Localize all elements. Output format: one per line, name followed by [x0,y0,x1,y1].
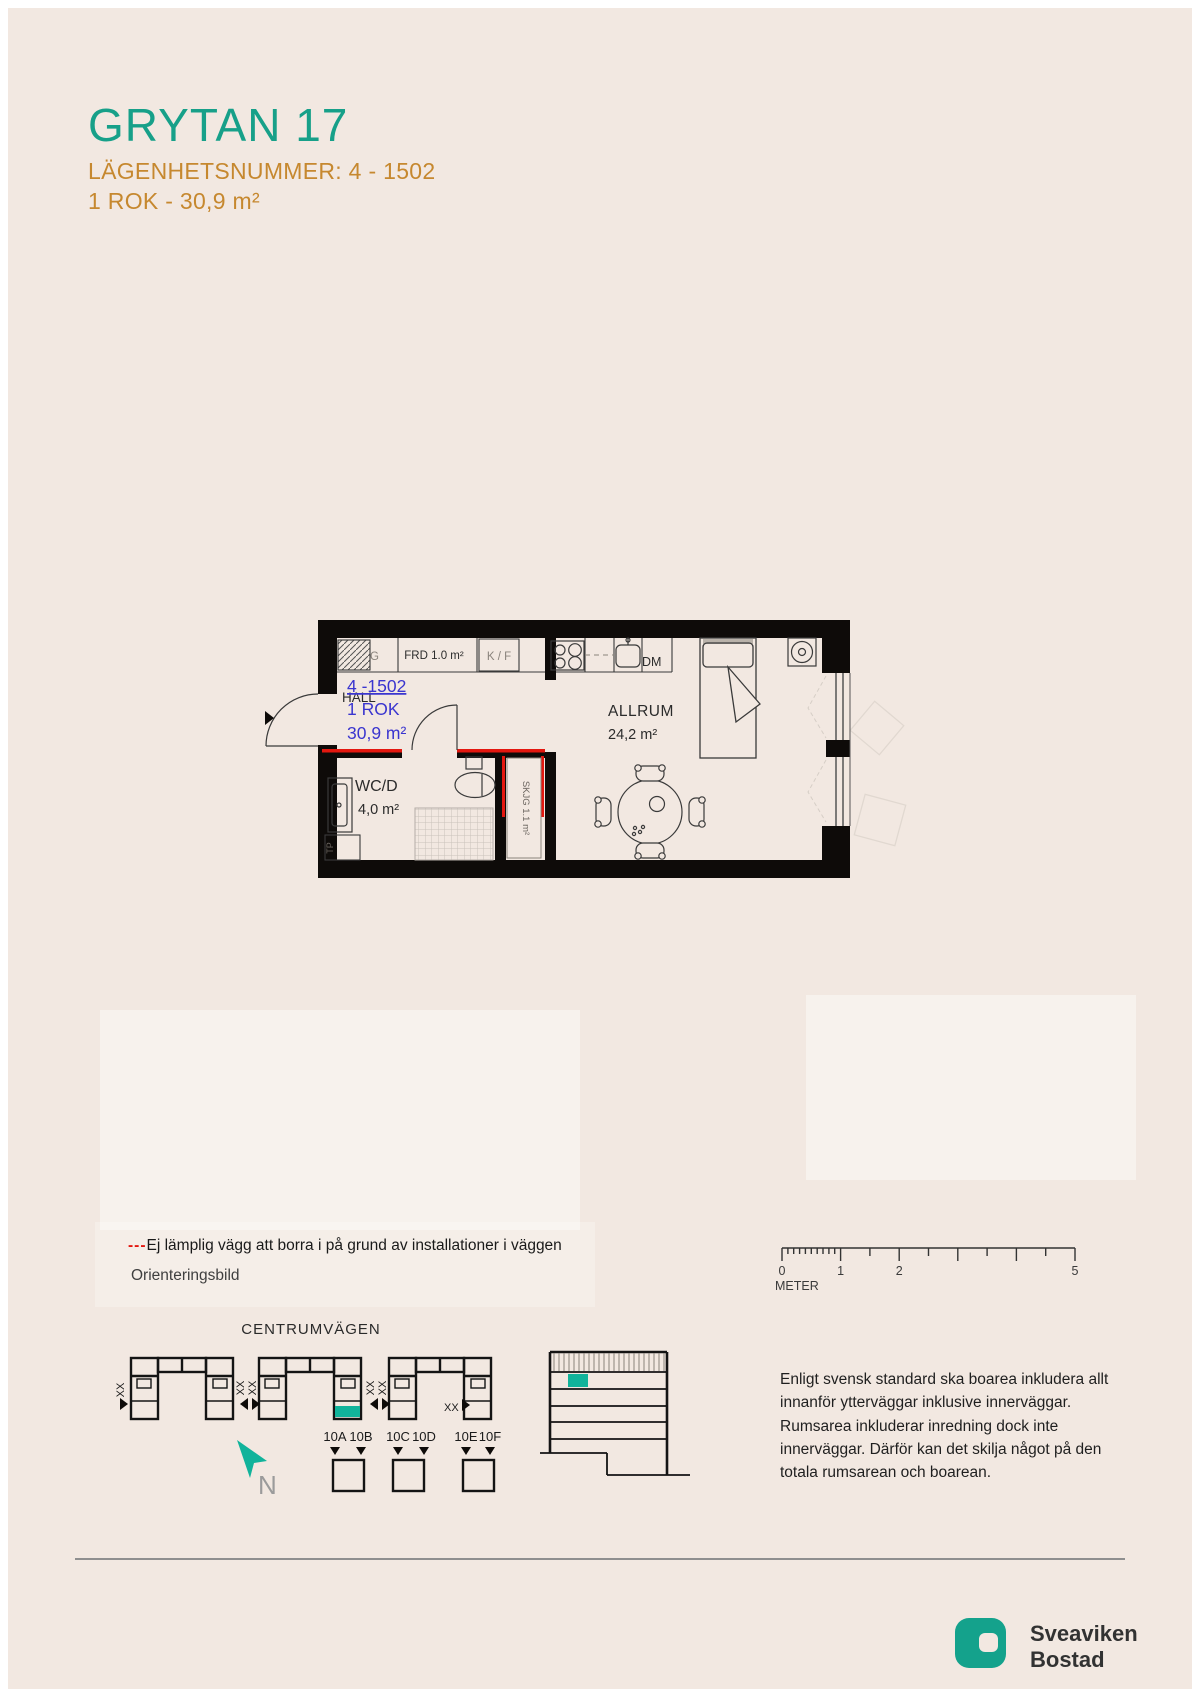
dm-label: DM [642,655,661,669]
building-3 [389,1358,491,1419]
no-drill-dash-icon: --- [128,1237,147,1254]
boarea-info-text: Enligt svensk standard ska boarea inklud… [780,1368,1125,1484]
entrance-squares [333,1460,494,1491]
floor-plan-drawing: G FRD 1.0 m² K / F DM HALL ALLRUM 24,2 m… [230,608,910,898]
nightstand-icon [788,638,816,666]
building-section-diagram [540,1345,700,1485]
entrance-label-10e: 10E [454,1429,477,1444]
entry-direction-arrows [120,1398,470,1411]
north-label: N [258,1470,277,1500]
g-closet-label: G [370,651,379,663]
scale-label-1: 1 [837,1264,844,1278]
xx-marker: XX [377,1380,389,1395]
page-title: GRYTAN 17 [88,98,348,152]
apartment-number-line: LÄGENHETSNUMMER: 4 - 1502 [88,158,435,185]
scale-label-0: 0 [779,1264,786,1278]
highlighted-unit [335,1406,360,1417]
toilet-icon [455,757,495,798]
scale-unit-label: METER [775,1279,819,1293]
xx-marker: XX [115,1382,127,1397]
site-plan: CENTRUMVÄGEN XX XX XX XX XX XX 10A 10B 1… [100,1310,530,1505]
wc-door [412,705,457,750]
floor-plan: G FRD 1.0 m² K / F DM HALL ALLRUM 24,2 m… [230,608,910,898]
window-swing-marks [808,676,826,822]
unit-area-label: 30,9 m² [347,723,406,743]
scale-label-5: 5 [1072,1264,1079,1278]
unit-id-labels: 4 -1502 1 ROK 30,9 m² [347,676,406,743]
entrance-label-10b: 10B [349,1429,372,1444]
wcd-area-label: 4,0 m² [358,802,399,818]
xx-marker: XX [235,1380,247,1395]
xx-marker: XX [444,1402,459,1414]
frd-label: FRD 1.0 m² [404,650,464,662]
footer-divider [75,1558,1125,1560]
allrum-area-label: 24,2 m² [608,727,657,743]
entry-door [266,694,318,746]
no-drill-legend: ---Ej lämplig vägg att borra i på grund … [128,1237,562,1255]
chairs-icon [595,765,705,859]
entrance-label-10f: 10F [479,1429,501,1444]
logo-name-line1: Sveaviken [1030,1621,1138,1647]
company-logo: Sveaviken Bostad [955,1618,1155,1678]
apartment-size-line: 1 ROK - 30,9 m² [88,188,260,215]
wcd-label: WC/D [355,778,398,795]
skjg-label: SKJG 1.1 m² [520,781,531,835]
xx-marker: XX [365,1380,377,1395]
entrance-arrows [330,1447,495,1455]
faded-image-placeholder [806,995,1136,1180]
legend-background [95,1222,595,1307]
section-highlighted-unit [568,1374,588,1387]
shower-area [415,808,493,860]
bed-icon [700,638,760,758]
xx-marker: XX [247,1380,259,1395]
allrum-label: ALLRUM [608,703,674,720]
logo-name-line2: Bostad [1030,1647,1138,1673]
sink-icon [616,638,640,667]
entrance-label-10d: 10D [412,1429,436,1444]
scale-label-2: 2 [896,1264,903,1278]
tp-label: TP [325,842,335,854]
entrance-label-10a: 10A [323,1429,346,1444]
faded-image-placeholder [100,1010,580,1230]
floor-plan-document: GRYTAN 17 LÄGENHETSNUMMER: 4 - 1502 1 RO… [0,0,1200,1697]
no-drill-legend-text: Ej lämplig vägg att borra i på grund av … [147,1237,562,1254]
sveaviken-logo-icon [955,1618,1006,1668]
dining-table-icon [618,780,682,844]
unit-type-label: 1 ROK [347,699,400,719]
street-name-label: CENTRUMVÄGEN [241,1321,381,1338]
scale-bar: 0 1 2 5 METER [770,1238,1100,1293]
orientation-image-label: Orienteringsbild [131,1267,240,1285]
faded-balcony-furniture [850,701,905,845]
entry-arrow-icon [265,711,274,725]
unit-number-label: 4 -1502 [347,676,406,696]
entrance-label-10c: 10C [386,1429,410,1444]
building-1 [131,1358,233,1419]
kf-label: K / F [487,651,511,663]
bathroom-sink-icon [328,778,352,832]
